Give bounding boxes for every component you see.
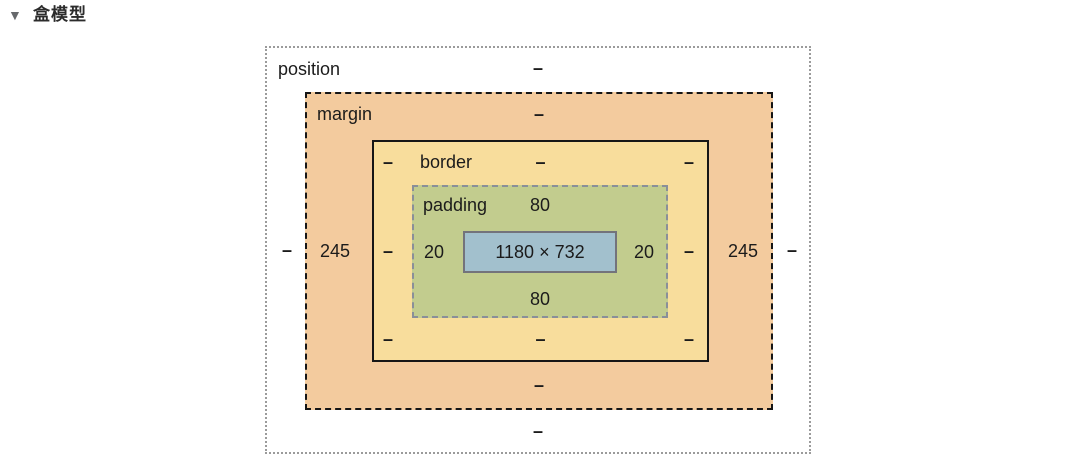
border-right-value[interactable]: –: [684, 240, 694, 262]
border-radius-bottom-right-value[interactable]: –: [684, 328, 694, 350]
margin-bottom-value[interactable]: –: [534, 374, 544, 396]
padding-left-value[interactable]: 20: [424, 241, 444, 263]
position-bottom-value[interactable]: –: [533, 420, 543, 442]
border-box[interactable]: – border – – – – – – – padding 80 20 20 …: [372, 140, 709, 362]
content-size-value[interactable]: 1180 × 732: [495, 242, 584, 263]
border-label: border: [420, 151, 472, 173]
margin-top-value[interactable]: –: [534, 103, 544, 125]
padding-right-value[interactable]: 20: [634, 241, 654, 263]
margin-right-value[interactable]: 245: [728, 240, 758, 262]
section-title: 盒模型: [33, 3, 87, 27]
padding-label: padding: [423, 194, 487, 216]
position-box[interactable]: position – – – – margin – 245 245 – – bo…: [265, 46, 811, 454]
position-left-value[interactable]: –: [282, 239, 292, 261]
border-radius-top-right-value[interactable]: –: [684, 151, 694, 173]
padding-bottom-value[interactable]: 80: [530, 288, 550, 310]
content-box[interactable]: 1180 × 732: [463, 231, 617, 273]
border-radius-top-left-value[interactable]: –: [383, 151, 393, 173]
border-radius-bottom-left-value[interactable]: –: [383, 328, 393, 350]
box-model-section-header[interactable]: ▼ 盒模型: [0, 0, 1080, 32]
position-right-value[interactable]: –: [787, 239, 797, 261]
border-bottom-value[interactable]: –: [535, 328, 545, 350]
position-label: position: [278, 58, 340, 80]
margin-left-value[interactable]: 245: [320, 240, 350, 262]
margin-label: margin: [317, 103, 372, 125]
collapse-triangle-icon[interactable]: ▼: [8, 5, 22, 25]
padding-top-value[interactable]: 80: [530, 194, 550, 216]
border-top-value[interactable]: –: [535, 151, 545, 173]
margin-box[interactable]: margin – 245 245 – – border – – – – – – …: [305, 92, 773, 410]
position-top-value[interactable]: –: [533, 57, 543, 79]
padding-box[interactable]: padding 80 20 20 80 1180 × 732: [412, 185, 668, 318]
border-left-value[interactable]: –: [383, 240, 393, 262]
